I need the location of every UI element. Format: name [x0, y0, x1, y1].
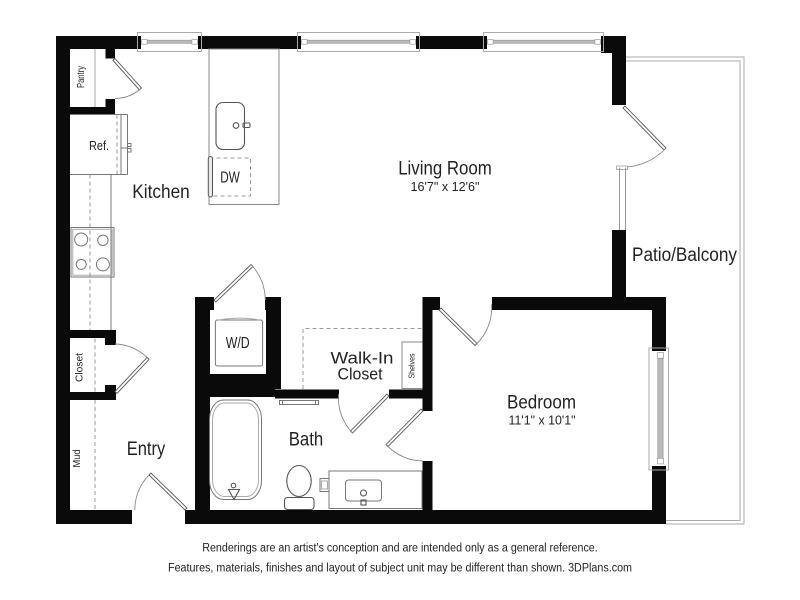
svg-text:Renderings are an artist's con: Renderings are an artist's conception an… — [202, 543, 598, 555]
svg-text:16'7" x 12'6": 16'7" x 12'6" — [411, 179, 480, 194]
svg-text:Closet: Closet — [338, 366, 383, 384]
svg-text:Features, materials, finishes: Features, materials, finishes and layout… — [168, 563, 632, 575]
svg-text:11'1" x 10'1": 11'1" x 10'1" — [509, 413, 576, 428]
svg-text:W/D: W/D — [226, 335, 250, 352]
svg-text:Kitchen: Kitchen — [132, 182, 190, 203]
svg-text:Ref.: Ref. — [89, 138, 109, 153]
svg-text:DW: DW — [220, 170, 240, 187]
svg-text:Mud: Mud — [72, 450, 83, 468]
svg-text:Patio/Balcony: Patio/Balcony — [632, 245, 737, 266]
svg-text:Closet: Closet — [75, 353, 86, 382]
svg-text:Entry: Entry — [127, 439, 166, 460]
svg-text:Bedroom: Bedroom — [507, 393, 576, 414]
svg-text:Bath: Bath — [289, 430, 324, 451]
svg-text:Pantry: Pantry — [76, 66, 87, 88]
svg-text:Living Room: Living Room — [398, 159, 492, 180]
svg-text:Shelves: Shelves — [407, 354, 417, 379]
